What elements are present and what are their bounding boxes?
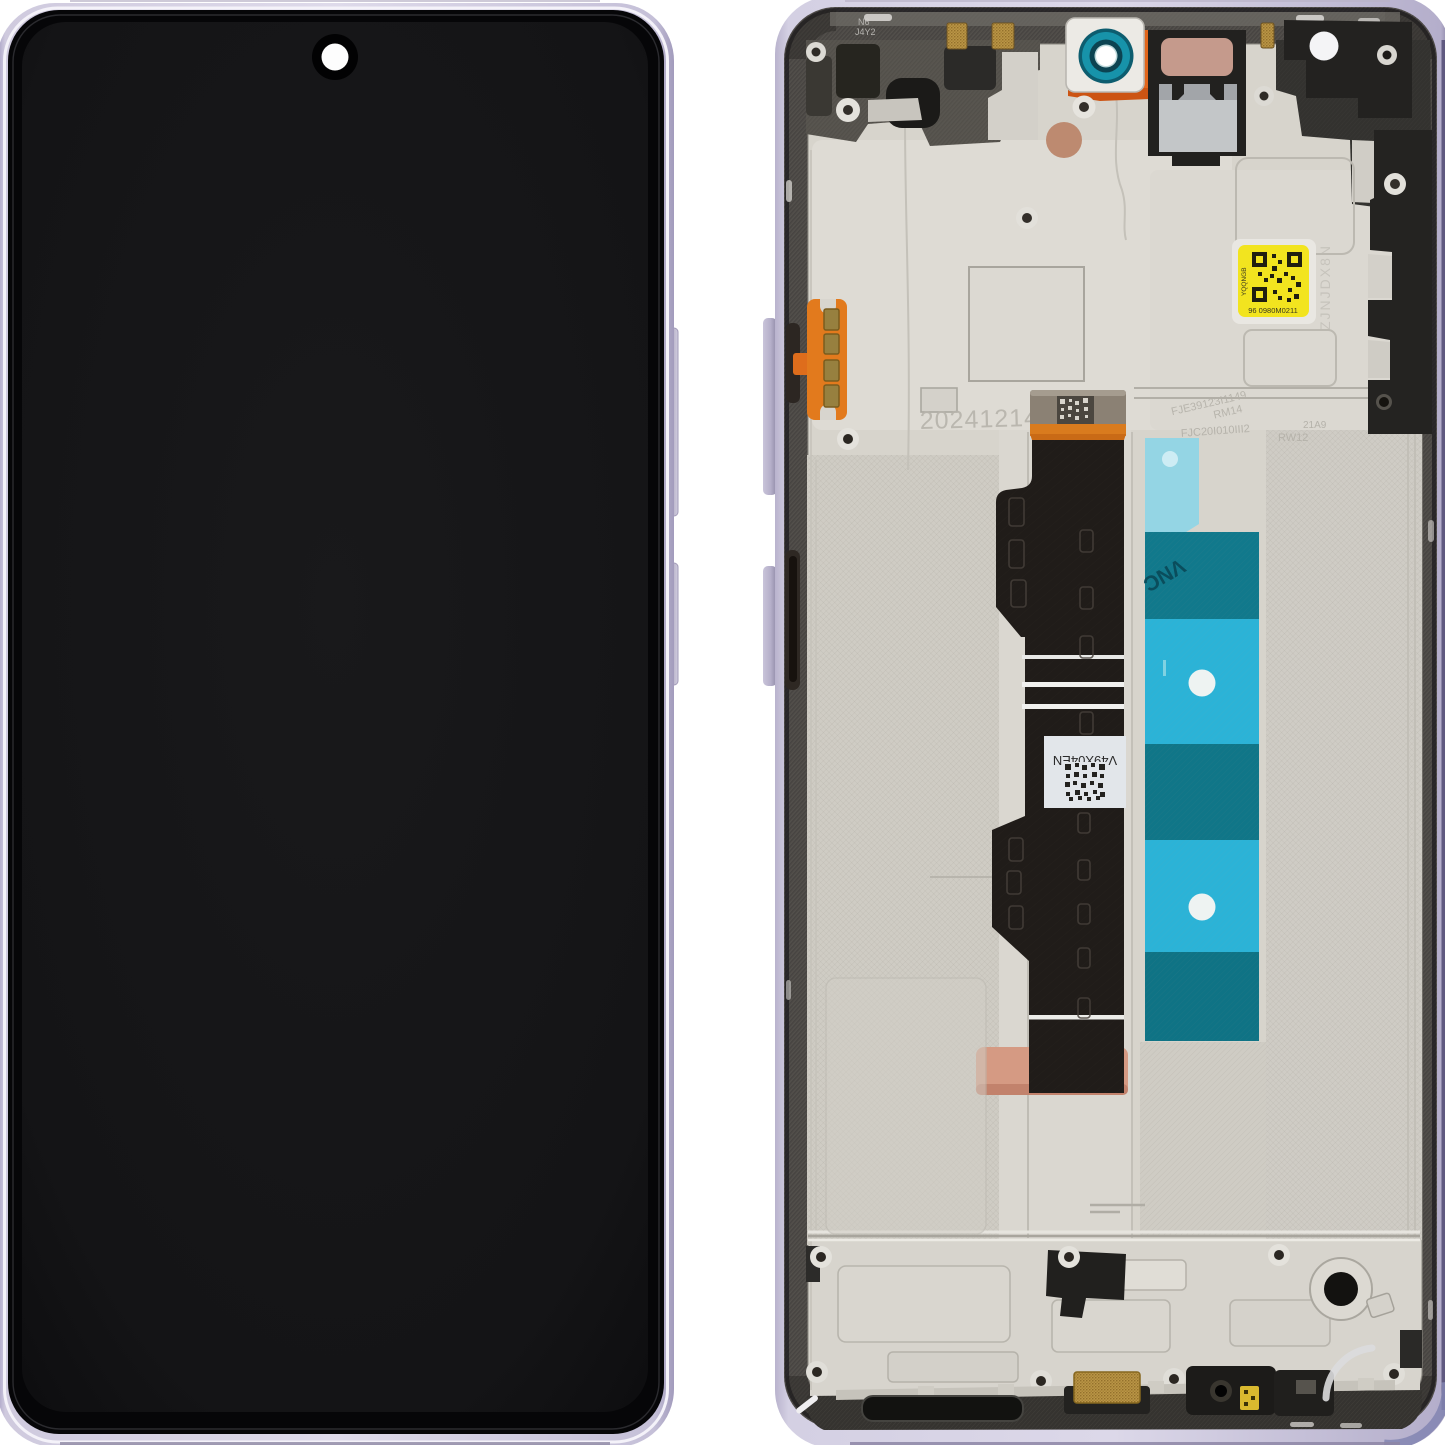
svg-text:RW12: RW12 — [1278, 432, 1308, 444]
svg-text:J4Y2: J4Y2 — [855, 27, 876, 37]
svg-text:96 0980M0211: 96 0980M0211 — [1248, 306, 1298, 315]
svg-text:20241214: 20241214 — [919, 404, 1039, 435]
svg-text:21A9: 21A9 — [1303, 420, 1327, 431]
svg-text:ZJNJDX8N: ZJNJDX8N — [1317, 244, 1333, 330]
svg-text:YQQNGB: YQQNGB — [1241, 267, 1248, 296]
